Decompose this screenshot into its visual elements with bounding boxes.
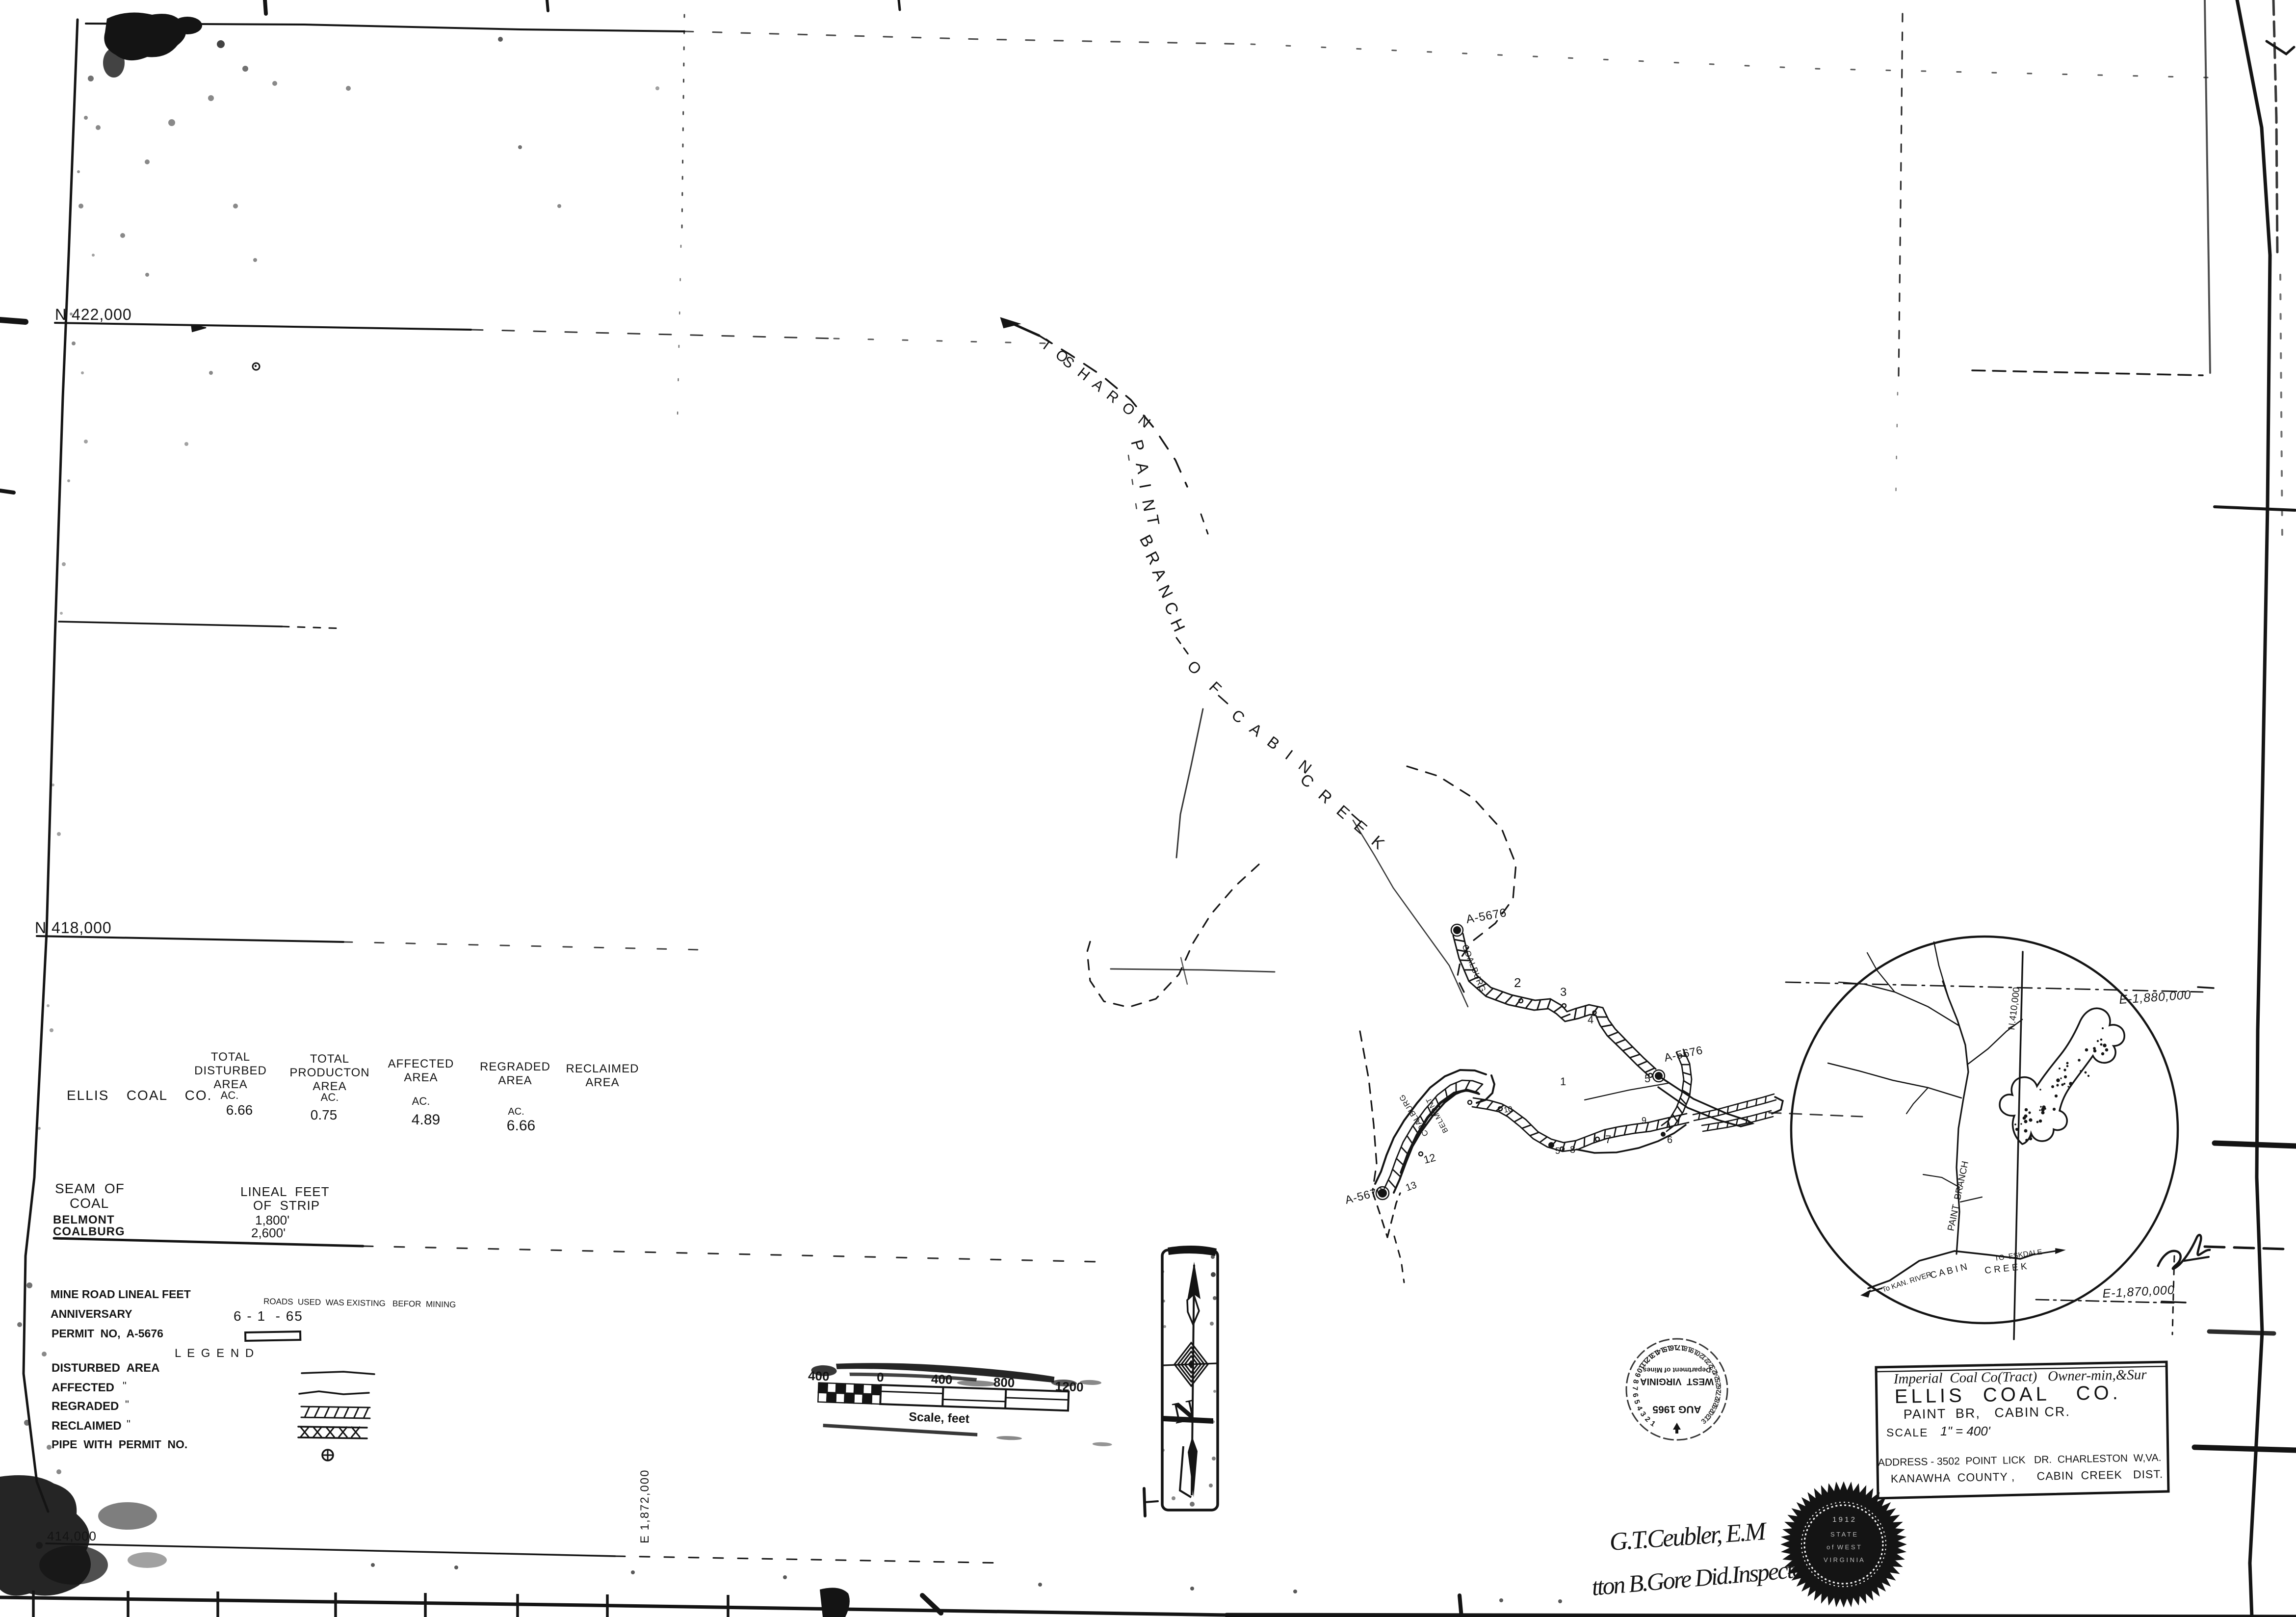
svg-text:N 422,000: N 422,000	[55, 306, 132, 323]
svg-text:ʺ: ʺ	[127, 1418, 130, 1430]
svg-text:AREA: AREA	[585, 1076, 619, 1089]
svg-text:TOTAL: TOTAL	[310, 1052, 349, 1066]
svg-text:ʺ: ʺ	[125, 1398, 129, 1410]
svg-text:AC.: AC.	[508, 1106, 524, 1117]
svg-text:2: 2	[1514, 975, 1521, 990]
svg-text:400: 400	[808, 1368, 830, 1383]
svg-text:LINEAL FEET: LINEAL FEET	[240, 1184, 330, 1199]
svg-text:6.66: 6.66	[507, 1118, 535, 1134]
svg-text:AC.: AC.	[321, 1091, 339, 1103]
svg-text:DISTURBED: DISTURBED	[194, 1064, 267, 1077]
svg-text:ELLIS COAL CO.: ELLIS COAL CO.	[1894, 1382, 2121, 1408]
svg-text:6.66: 6.66	[226, 1102, 253, 1118]
svg-text:PRODUCTON: PRODUCTON	[289, 1066, 369, 1079]
svg-text:7: 7	[1605, 1133, 1611, 1146]
svg-text:1" = 400': 1" = 400'	[1940, 1424, 1991, 1438]
svg-text:414,000: 414,000	[47, 1529, 97, 1543]
svg-text:Department of Mines: Department of Mines	[1643, 1366, 1711, 1374]
svg-text:S T A T E: S T A T E	[1830, 1531, 1857, 1538]
svg-text:PIPE WITH PERMIT NO.: PIPE WITH PERMIT NO.	[52, 1438, 187, 1451]
svg-text:RECLAIMED: RECLAIMED	[566, 1062, 639, 1075]
svg-text:REGRADED: REGRADED	[52, 1400, 119, 1413]
svg-text:PERMIT NO, A-5676: PERMIT NO, A-5676	[52, 1327, 163, 1340]
svg-text:BELMONT: BELMONT	[53, 1213, 115, 1226]
svg-text:10: 10	[1503, 1105, 1513, 1115]
svg-text:DISTURBED AREA: DISTURBED AREA	[52, 1361, 159, 1375]
svg-text:400: 400	[931, 1372, 953, 1387]
svg-text:8: 8	[1570, 1145, 1575, 1155]
svg-text:0.75: 0.75	[311, 1107, 338, 1122]
svg-text:ELLIS COAL CO.: ELLIS COAL CO.	[67, 1088, 212, 1103]
svg-text:6: 6	[1667, 1135, 1672, 1146]
svg-text:1 9 1 2: 1 9 1 2	[1832, 1515, 1855, 1524]
svg-text:REGRADED: REGRADED	[480, 1060, 550, 1073]
svg-text:TOTAL: TOTAL	[211, 1050, 250, 1064]
svg-text:7: 7	[1631, 1386, 1639, 1391]
svg-text:AREA: AREA	[404, 1071, 438, 1084]
svg-text:0: 0	[877, 1370, 885, 1384]
svg-text:RECLAIMED: RECLAIMED	[52, 1419, 122, 1433]
svg-text:OF STRIP: OF STRIP	[253, 1198, 320, 1213]
svg-text:ʺ: ʺ	[123, 1380, 127, 1392]
svg-text:COALBURG: COALBURG	[53, 1225, 125, 1238]
svg-text:E 1,872,000: E 1,872,000	[638, 1469, 652, 1543]
svg-text:1200: 1200	[1055, 1379, 1084, 1394]
svg-text:SCALE: SCALE	[1886, 1426, 1928, 1439]
svg-text:L E G E N D: L E G E N D	[175, 1347, 255, 1360]
svg-text:AFFECTED: AFFECTED	[52, 1381, 114, 1394]
svg-text:N 418,000: N 418,000	[35, 919, 112, 937]
svg-text:800: 800	[993, 1375, 1015, 1390]
svg-text:AFFECTED: AFFECTED	[388, 1057, 454, 1070]
svg-text:Scale, feet: Scale, feet	[909, 1410, 970, 1426]
svg-text:5: 5	[1555, 1146, 1560, 1156]
svg-text:SEAM OF: SEAM OF	[55, 1181, 125, 1196]
svg-text:AUG 1965: AUG 1965	[1652, 1404, 1701, 1415]
svg-text:ANNIVERSARY: ANNIVERSARY	[51, 1307, 132, 1320]
svg-text:3: 3	[1560, 986, 1566, 999]
svg-text:COAL: COAL	[70, 1196, 109, 1211]
svg-text:2,600': 2,600'	[251, 1226, 286, 1240]
svg-text:V I R G I N I A: V I R G I N I A	[1824, 1556, 1864, 1564]
svg-text:6 - 1 - 65: 6 - 1 - 65	[234, 1308, 303, 1324]
svg-text:AC.: AC.	[412, 1095, 430, 1107]
svg-text:MINE ROAD LINEAL FEET: MINE ROAD LINEAL FEET	[51, 1288, 191, 1301]
svg-text:WEST VIRGINIA: WEST VIRGINIA	[1640, 1376, 1714, 1386]
svg-text:9: 9	[1642, 1116, 1646, 1125]
svg-text:o f W E S T: o f W E S T	[1826, 1543, 1861, 1551]
svg-text:AC.: AC.	[221, 1089, 239, 1101]
svg-text:PAINT BR, CABIN CR.: PAINT BR, CABIN CR.	[1904, 1404, 2071, 1422]
svg-text:4: 4	[1588, 1014, 1593, 1026]
svg-text:1: 1	[1560, 1075, 1566, 1088]
svg-text:4.89: 4.89	[412, 1112, 440, 1128]
svg-text:AREA: AREA	[498, 1074, 532, 1087]
